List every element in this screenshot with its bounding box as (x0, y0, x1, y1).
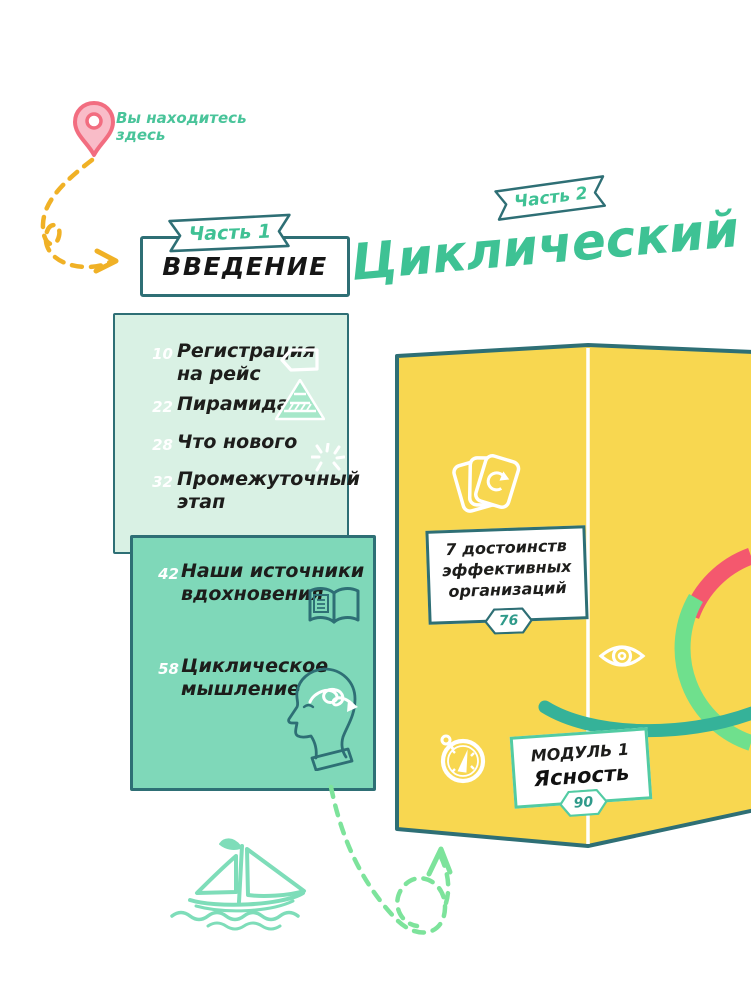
advantages-page-number: 76 (484, 607, 533, 635)
page-number: 22 (145, 398, 173, 416)
sources-contents-box: 42 Наши источники вдохновения 58 Цикличе… (130, 535, 376, 791)
module1-page-number: 90 (559, 788, 609, 817)
toc-item-label: Что нового (177, 431, 297, 454)
sailboat-illustration (172, 839, 304, 929)
page-number: 28 (145, 436, 173, 454)
page-number: 32 (145, 473, 173, 491)
open-book-icon (306, 584, 362, 630)
part1-title: ВВЕДЕНИЕ (162, 252, 327, 281)
page-number: 42 (151, 565, 179, 583)
module1-page-badge: 90 (559, 788, 609, 817)
toc-item-label: Промежуточный этап (177, 468, 360, 514)
part1-title-box: ВВЕДЕНИЕ (140, 236, 350, 297)
part2-title: Циклический (349, 200, 741, 292)
you-are-here-label: Вы находитесь здесь (116, 110, 247, 145)
head-spiral-icon (280, 666, 360, 771)
yellow-dashed-arrow (43, 160, 116, 271)
advantages-page-badge: 76 (484, 607, 533, 635)
luggage-tag-icon (280, 348, 320, 372)
book-contents-page: Вы находитесь здесь ВВЕДЕНИЕ Часть 1 Час… (0, 0, 751, 1000)
toc-item-label: Пирамида (177, 393, 290, 416)
pyramid-icon (275, 379, 325, 421)
page-number: 10 (145, 345, 173, 363)
map-label-advantages: 7 достоинств эффективных организаций 76 (425, 525, 588, 625)
map-label-module1: МОДУЛЬ 1 Ясность 90 (510, 727, 653, 808)
page-number: 58 (151, 660, 179, 678)
intro-contents-box: 10 Регистрация на рейс 22 Пирамида 28 Чт… (113, 313, 349, 554)
location-pin-icon (72, 100, 116, 158)
part2-title-wrap: Циклический (360, 188, 730, 303)
